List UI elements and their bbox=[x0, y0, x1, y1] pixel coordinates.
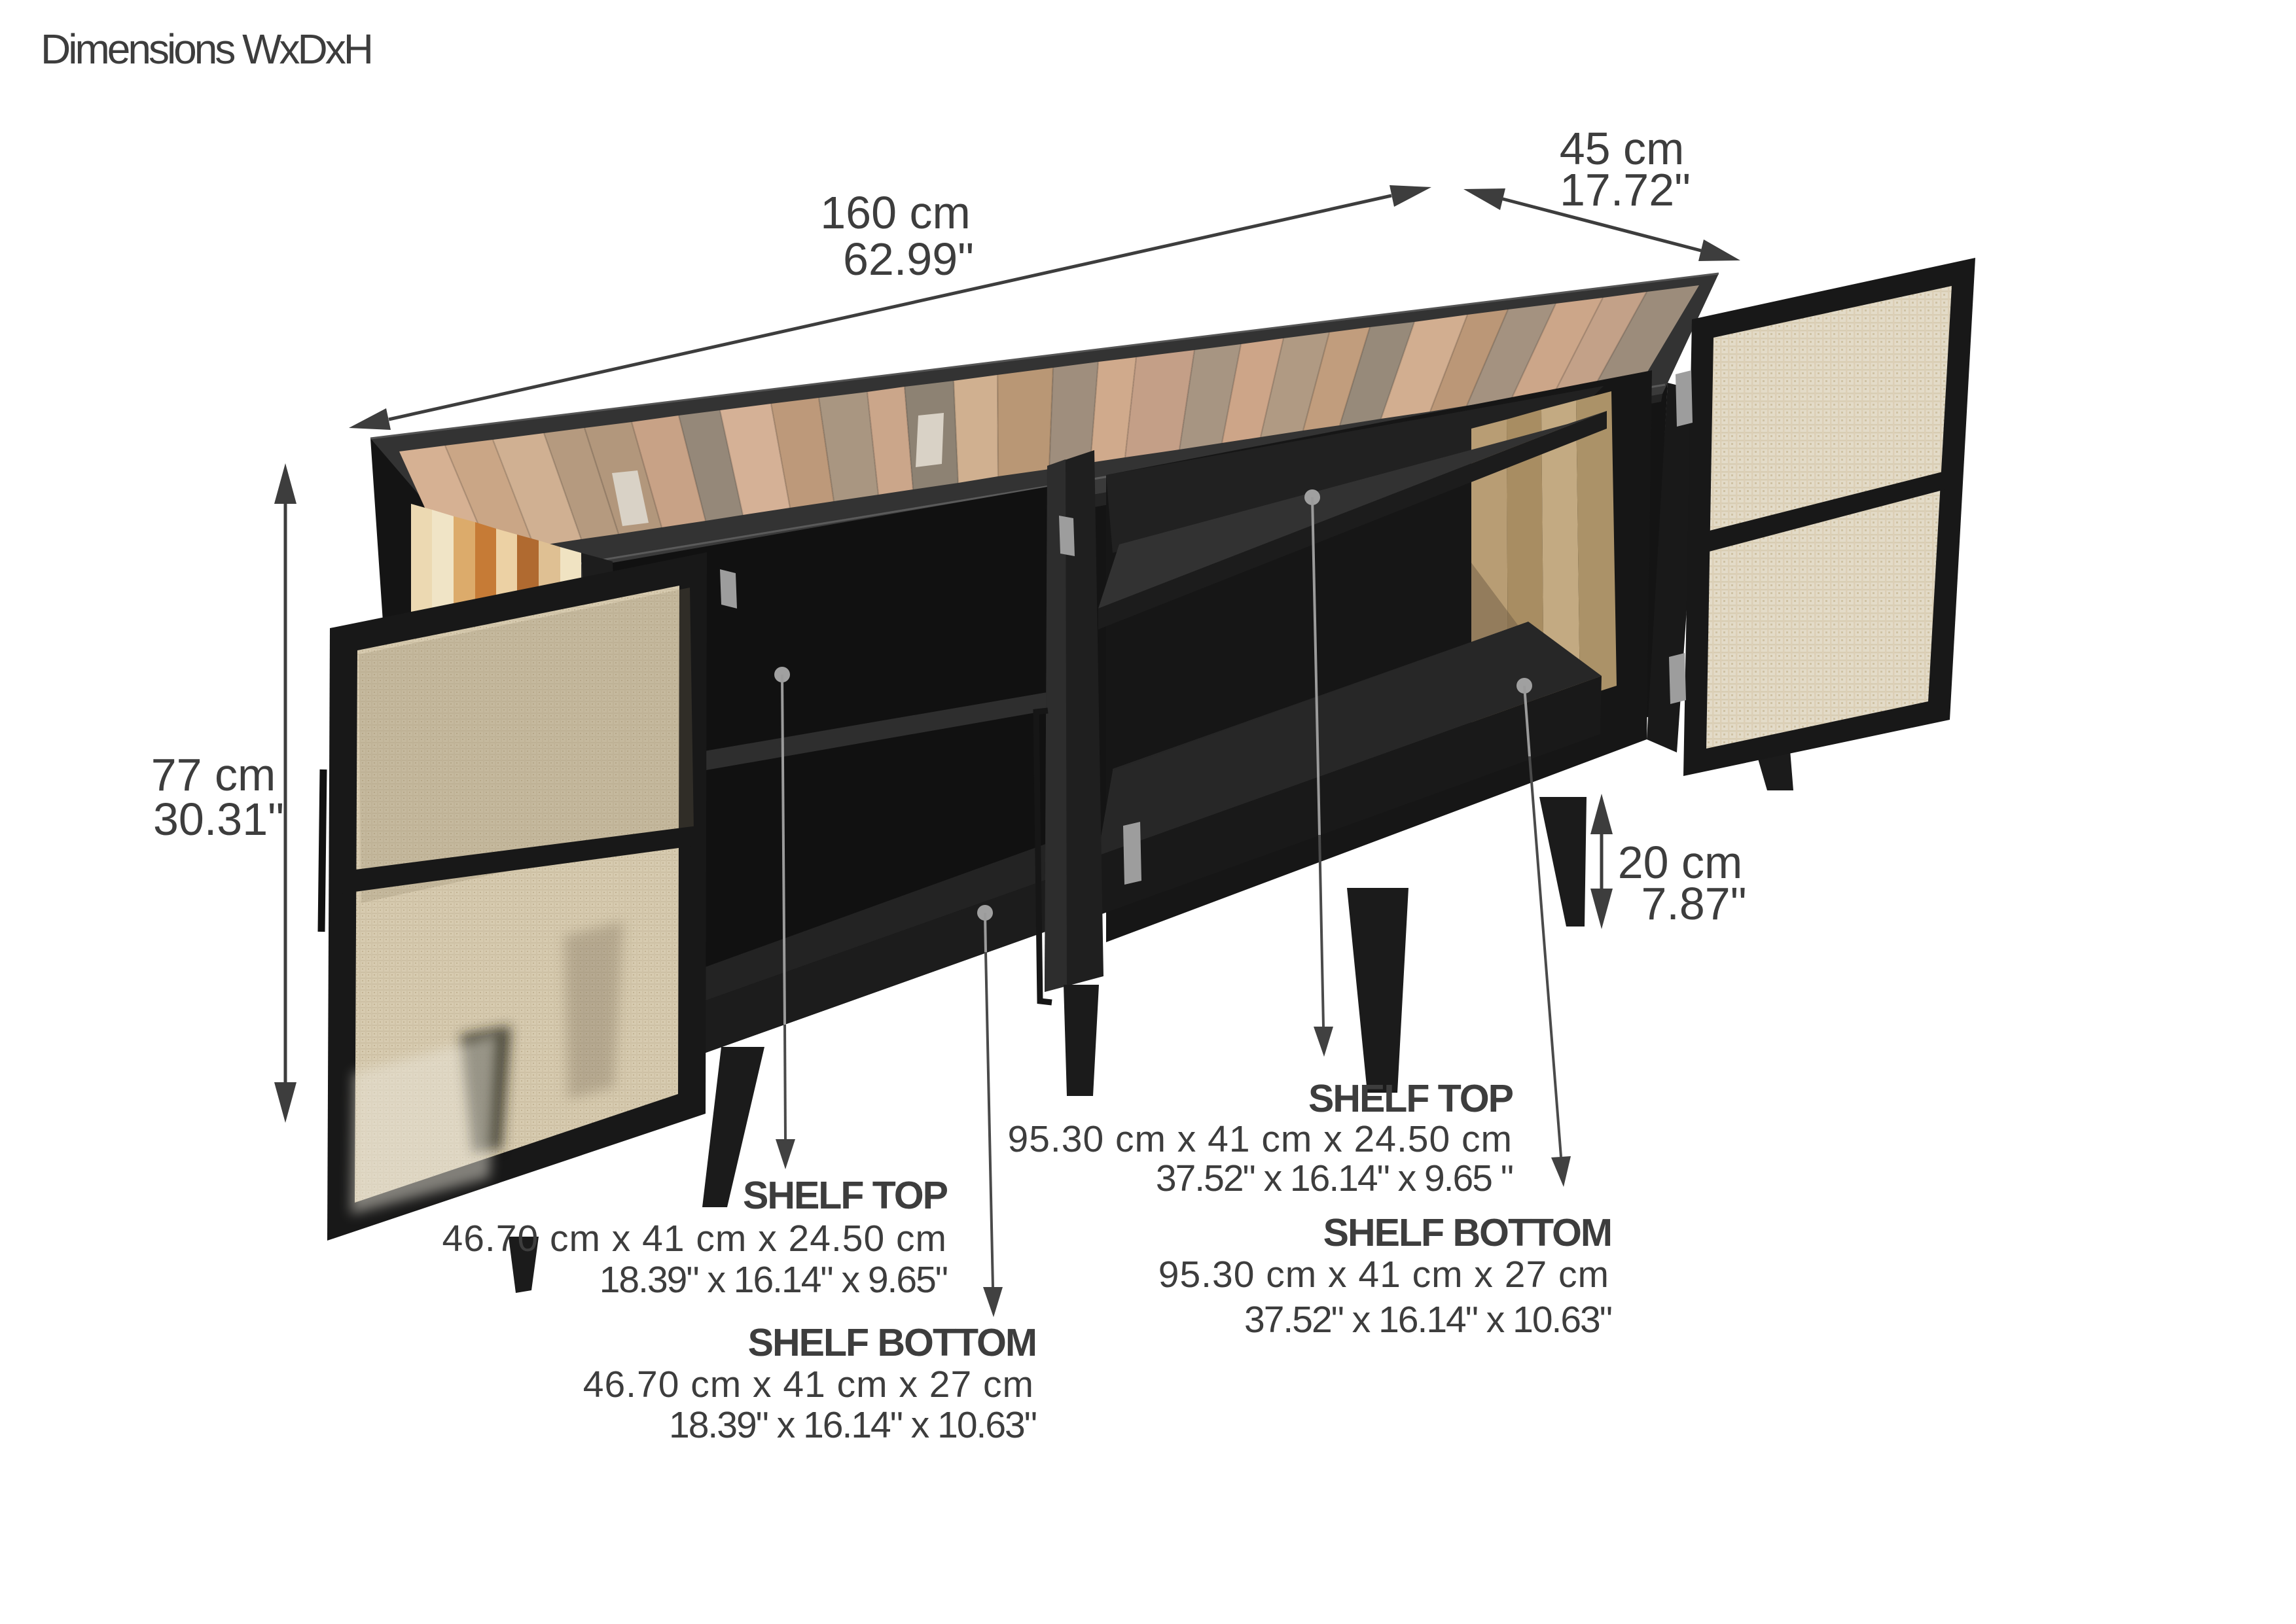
svg-text:160 cm: 160 cm bbox=[820, 187, 971, 238]
svg-text:30.31": 30.31" bbox=[153, 794, 284, 845]
svg-text:77 cm: 77 cm bbox=[151, 749, 276, 800]
svg-text:37.52" x 16.14" x 10.63": 37.52" x 16.14" x 10.63" bbox=[1244, 1299, 1611, 1341]
svg-text:SHELF BOTTOM: SHELF BOTTOM bbox=[1323, 1211, 1611, 1254]
svg-text:SHELF TOP: SHELF TOP bbox=[1308, 1077, 1513, 1120]
svg-text:46.70 cm x 41 cm x 27 cm: 46.70 cm x 41 cm x 27 cm bbox=[583, 1364, 1034, 1405]
svg-text:17.72": 17.72" bbox=[1560, 164, 1691, 215]
svg-text:18.39" x 16.14" x 10.63": 18.39" x 16.14" x 10.63" bbox=[669, 1404, 1036, 1446]
svg-text:46.70 cm x 41 cm x 24.50 cm: 46.70 cm x 41 cm x 24.50 cm bbox=[442, 1218, 947, 1260]
svg-text:95.30 cm x 41 cm x 27 cm: 95.30 cm x 41 cm x 27 cm bbox=[1158, 1254, 1609, 1296]
svg-text:7.87": 7.87" bbox=[1641, 878, 1746, 929]
svg-text:SHELF BOTTOM: SHELF BOTTOM bbox=[748, 1321, 1036, 1364]
svg-text:SHELF TOP: SHELF TOP bbox=[743, 1174, 948, 1217]
svg-text:18.39" x 16.14" x 9.65": 18.39" x 16.14" x 9.65" bbox=[600, 1259, 947, 1301]
svg-text:62.99": 62.99" bbox=[843, 234, 974, 285]
svg-text:Dimensions WxDxH: Dimensions WxDxH bbox=[41, 26, 371, 73]
svg-text:95.30 cm x 41 cm x 24.50 cm: 95.30 cm x 41 cm x 24.50 cm bbox=[1008, 1118, 1513, 1160]
svg-text:37.52" x 16.14" x 9.65 ": 37.52" x 16.14" x 9.65 " bbox=[1156, 1157, 1513, 1199]
